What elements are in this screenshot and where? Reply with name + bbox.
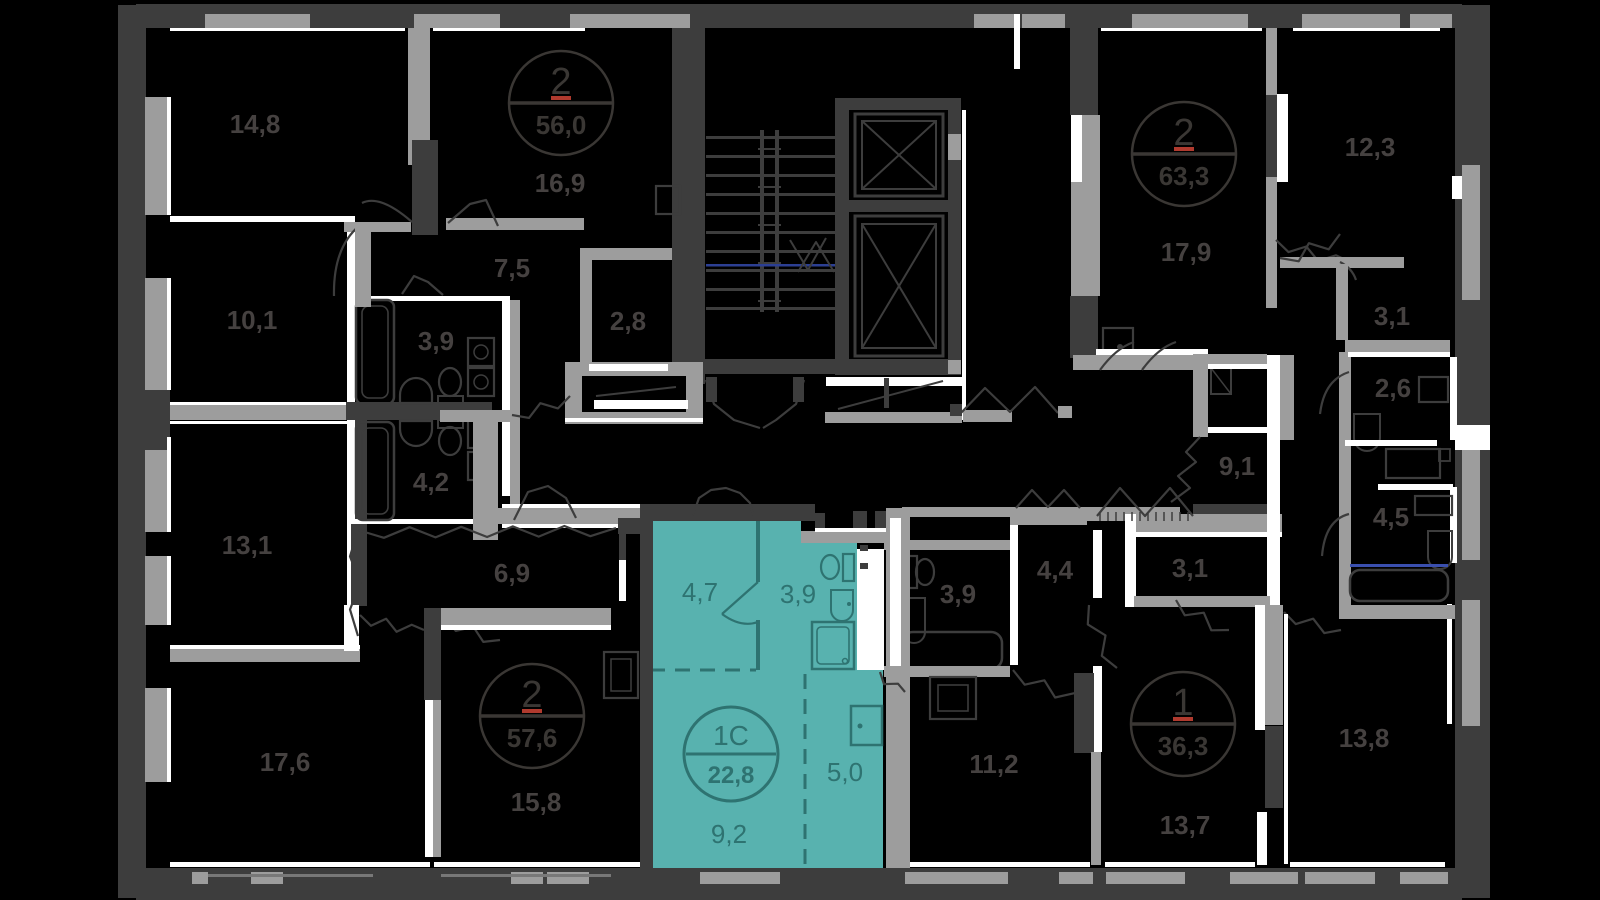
svg-text:13,8: 13,8 — [1339, 723, 1390, 753]
svg-text:12,3: 12,3 — [1345, 132, 1396, 162]
svg-text:2,6: 2,6 — [1375, 373, 1411, 403]
svg-text:1С: 1С — [713, 720, 749, 751]
svg-text:4,2: 4,2 — [413, 467, 449, 497]
svg-text:4,4: 4,4 — [1037, 555, 1074, 585]
svg-text:13,1: 13,1 — [222, 530, 273, 560]
svg-text:63,3: 63,3 — [1159, 161, 1210, 191]
svg-text:3,9: 3,9 — [940, 579, 976, 609]
svg-text:11,2: 11,2 — [969, 749, 1018, 779]
svg-text:17,6: 17,6 — [260, 747, 311, 777]
svg-text:13,7: 13,7 — [1160, 810, 1211, 840]
svg-text:5,0: 5,0 — [827, 757, 863, 787]
svg-text:14,8: 14,8 — [230, 109, 281, 139]
svg-text:2,8: 2,8 — [610, 306, 646, 336]
svg-text:17,9: 17,9 — [1161, 237, 1212, 267]
svg-text:10,1: 10,1 — [227, 305, 278, 335]
svg-text:7,5: 7,5 — [494, 253, 530, 283]
svg-text:16,9: 16,9 — [535, 168, 586, 198]
svg-text:22,8: 22,8 — [708, 762, 755, 789]
svg-text:3,1: 3,1 — [1172, 553, 1208, 583]
svg-text:9,2: 9,2 — [711, 819, 747, 849]
svg-text:15,8: 15,8 — [511, 787, 562, 817]
svg-text:4,5: 4,5 — [1373, 502, 1409, 532]
svg-text:3,1: 3,1 — [1374, 301, 1410, 331]
svg-text:36,3: 36,3 — [1158, 731, 1209, 761]
svg-text:56,0: 56,0 — [536, 110, 587, 140]
svg-text:9,1: 9,1 — [1219, 451, 1255, 481]
svg-text:3,9: 3,9 — [780, 579, 816, 609]
svg-text:3,9: 3,9 — [418, 326, 454, 356]
svg-text:4,7: 4,7 — [682, 577, 718, 607]
svg-text:6,9: 6,9 — [494, 558, 530, 588]
svg-text:57,6: 57,6 — [507, 723, 558, 753]
